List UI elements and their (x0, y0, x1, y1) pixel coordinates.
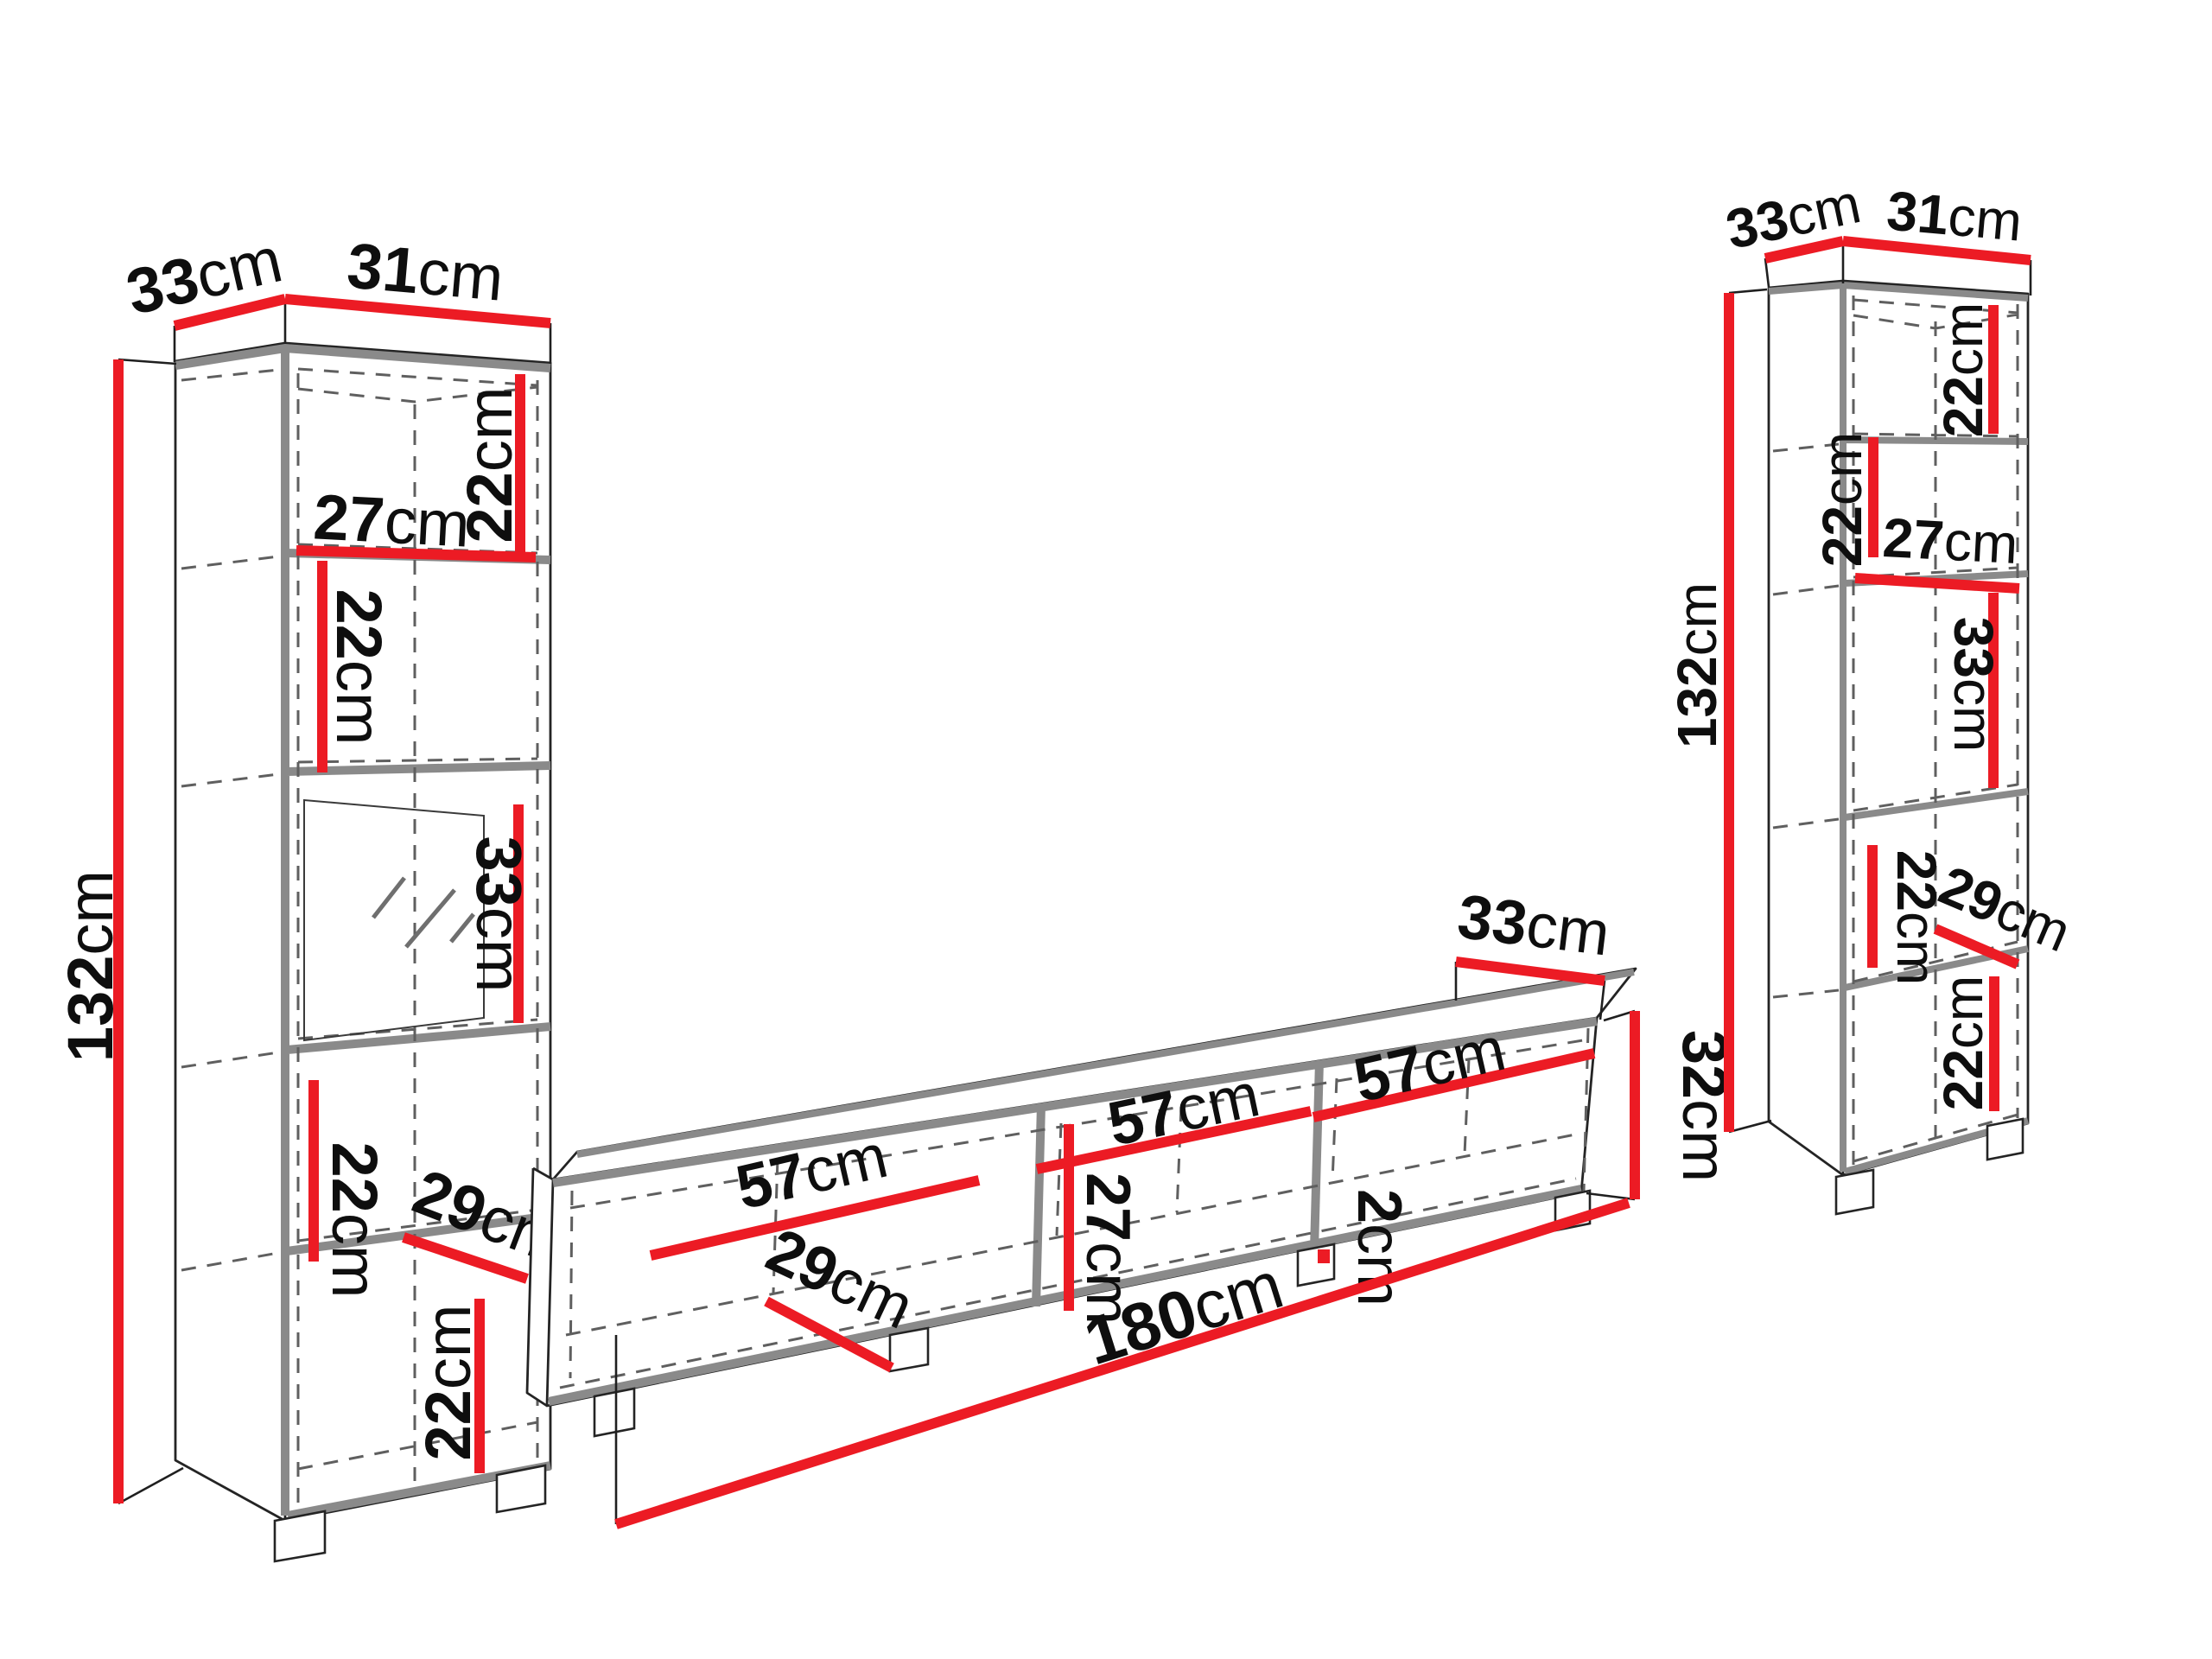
left-cabinet-top-width-label: 31cm (344, 229, 506, 314)
left-cabinet-section3-unit: cm (463, 907, 535, 993)
tv-stand-divider-thickness-value: 2 (1344, 1189, 1414, 1224)
left-cabinet-section3-label: 33cm (463, 836, 535, 993)
left-cabinet-height-value: 132 (54, 956, 126, 1062)
left-cabinet-section4-label: 22cm (319, 1142, 391, 1299)
right-cabinet-section3-value: 33 (1942, 617, 2005, 678)
diagram-canvas: 132cm 33cm 31cm 22cm 27cm 22cm 33cm 22cm… (0, 0, 2212, 1659)
right-cabinet-top-width-label: 31cm (1885, 179, 2024, 252)
right-cabinet-height-label: 132cm (1666, 582, 1728, 748)
left-cabinet-section2-label: 22cm (323, 589, 395, 746)
right-cabinet-section1-label: 22cm (1932, 302, 1994, 438)
right-cabinet-section3-unit: cm (1942, 678, 2005, 752)
left-cabinet-section2-value: 22 (323, 589, 395, 660)
left-cabinet-section2-unit: cm (323, 660, 395, 746)
right-cabinet-section5-unit: cm (1932, 976, 1994, 1049)
left-cabinet-shelf-width-value: 27 (312, 480, 387, 556)
right-cabinet-shelf-width-unit: cm (1942, 510, 2019, 575)
tv-stand-top-depth-label: 33cm (1454, 882, 1614, 969)
left-cabinet-top-depth-label: 33cm (120, 223, 289, 328)
left-cabinet-section4-value: 22 (319, 1142, 391, 1213)
left-cabinet-section4-unit: cm (319, 1213, 391, 1299)
left-cabinet-top-width-value: 31 (344, 229, 421, 307)
right-cabinet-section3-label: 33cm (1942, 617, 2005, 753)
left-cabinet-section5-value: 22 (412, 1389, 484, 1460)
left-cabinet-top-width-unit: cm (415, 236, 506, 315)
right-cabinet-section1-value: 22 (1932, 376, 1994, 437)
tv-stand-inner-height-value: 27 (1073, 1173, 1142, 1242)
left-cabinet-height-label: 132cm (54, 870, 126, 1062)
left-cabinet-section5-unit: cm (412, 1305, 484, 1390)
tv-stand-top-depth-value: 33 (1454, 882, 1531, 959)
right-cabinet-section5-label: 22cm (1932, 976, 1994, 1111)
left-cabinet-height-unit: cm (54, 870, 126, 956)
right-cabinet-section2-unit: cm (1811, 432, 1873, 505)
left-cabinet-shelf-width-unit: cm (383, 485, 472, 561)
right-cabinet-section1-unit: cm (1932, 302, 1994, 376)
furniture-dimension-diagram: 132cm 33cm 31cm 22cm 27cm 22cm 33cm 22cm… (0, 0, 2212, 1659)
right-cabinet-shelf-width-label: 27cm (1881, 506, 2019, 575)
right-cabinet-section4-label: 22cm (1885, 850, 1948, 986)
right-cabinet-top-width-unit: cm (1946, 185, 2024, 253)
right-cabinet-section4-unit: cm (1885, 912, 1948, 985)
left-cabinet-section1-unit: cm (454, 387, 525, 473)
left-cabinet-shelf-width-label: 27cm (312, 480, 472, 560)
right-cabinet-section2-label: 22cm (1811, 432, 1873, 568)
right-cabinet-height-value: 132 (1666, 656, 1728, 748)
right-cabinet-shelf-width-value: 27 (1881, 506, 1946, 572)
left-cabinet-section3-value: 33 (463, 836, 535, 907)
right-cabinet-top-width-value: 31 (1885, 179, 1951, 246)
right-cabinet-height-unit: cm (1666, 582, 1728, 656)
right-cabinet-top-depth-unit: cm (1781, 172, 1866, 248)
tv-stand-top-depth-unit: cm (1522, 891, 1613, 969)
right-cabinet-section2-value: 22 (1811, 505, 1873, 567)
right-cabinet-section5-value: 22 (1932, 1049, 1994, 1110)
left-cabinet-section5-label: 22cm (412, 1305, 484, 1461)
